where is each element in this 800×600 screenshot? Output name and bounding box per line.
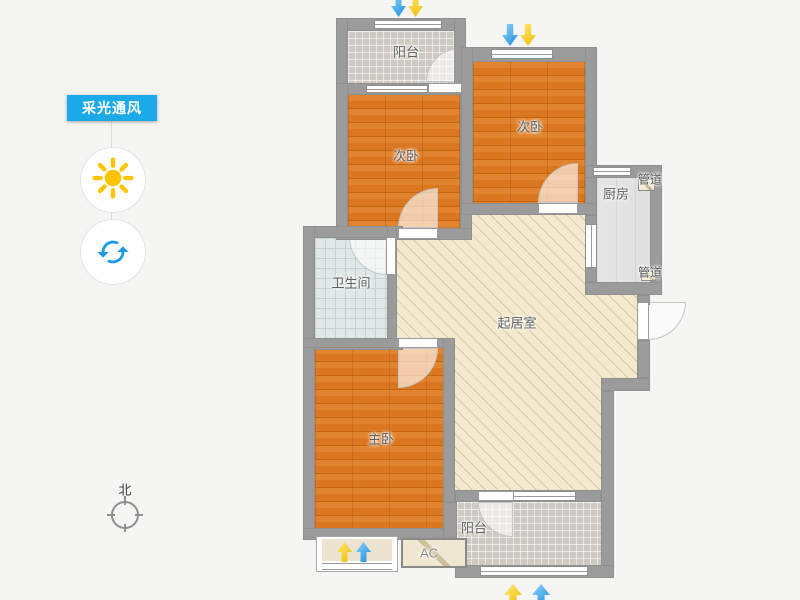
airflow-down-yellow-icon <box>408 0 423 17</box>
door-swing-arc <box>648 302 686 340</box>
door-leaf <box>398 338 438 348</box>
wall-segment <box>601 391 614 578</box>
wall-segment <box>585 282 662 295</box>
daylight-ventilation-badge[interactable]: 采光通风 <box>67 95 157 121</box>
wall-segment <box>637 340 650 378</box>
window <box>593 167 631 176</box>
room-label-ac: AC <box>420 546 438 561</box>
compass-tick <box>124 524 126 532</box>
wall-segment <box>601 378 650 391</box>
airflow-down-blue-icon <box>502 24 518 46</box>
wall-segment <box>461 47 473 215</box>
window <box>374 20 442 29</box>
airflow-up-yellow-icon <box>504 584 522 600</box>
door-leaf <box>428 83 462 93</box>
wall-segment <box>585 47 597 215</box>
room-label-duct-top: 管道 <box>638 171 662 188</box>
room-label-balcony-bottom: 阳台 <box>461 518 487 537</box>
wall-segment <box>336 83 348 240</box>
room-label-kitchen: 厨房 <box>603 184 629 203</box>
window <box>366 85 428 93</box>
floorplan-canvas: 阳台 次卧 次卧 厨房 管道 管道 卫生间 起居室 主卧 阳台 AC 采光通风 <box>0 0 800 600</box>
door-leaf <box>478 491 514 501</box>
room-label-duct-bottom: 管道 <box>638 264 662 281</box>
wall-segment <box>303 338 315 540</box>
airflow-down-blue-icon <box>391 0 406 17</box>
door-leaf <box>538 203 578 214</box>
bay-window-sill <box>322 563 392 570</box>
wall-segment <box>303 226 315 350</box>
airflow-down-yellow-icon <box>520 24 536 46</box>
sun-icon <box>92 157 134 204</box>
room-label-living-room: 起居室 <box>497 313 536 332</box>
room-label-bathroom: 卫生间 <box>331 273 370 292</box>
door-leaf <box>386 237 396 275</box>
ventilation-button[interactable] <box>80 219 146 285</box>
entry-door-leaf <box>637 302 649 340</box>
compass-tick <box>107 514 115 516</box>
daylight-button[interactable] <box>80 147 146 213</box>
room-label-bedroom-left: 次卧 <box>393 146 419 165</box>
room-label-bedroom-right: 次卧 <box>517 117 543 136</box>
compass-tick <box>135 514 143 516</box>
window <box>480 566 588 576</box>
bay-window <box>316 536 398 572</box>
window <box>512 491 576 501</box>
room-label-master-bedroom: 主卧 <box>368 429 394 448</box>
bay-window-floor <box>322 539 392 561</box>
refresh-icon <box>96 235 130 269</box>
compass-north-label: 北 <box>118 480 131 499</box>
kitchen-sliding-door <box>585 224 597 268</box>
door-leaf <box>398 228 438 239</box>
window <box>491 49 553 59</box>
airflow-up-blue-icon <box>532 584 550 600</box>
room-label-balcony-top: 阳台 <box>393 42 419 61</box>
